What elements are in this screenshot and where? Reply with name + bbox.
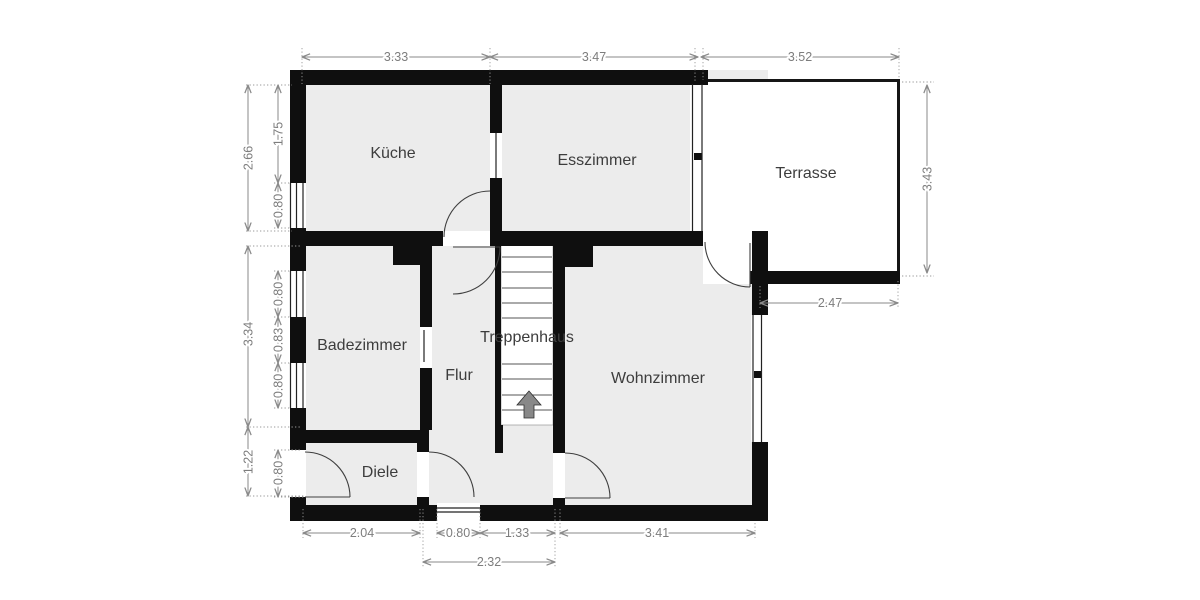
dim-label-left-outer-2: 3.34 [242,322,256,346]
floorplan-drawing: 3.33 3.47 3.52 2.66 3.34 1.22 1.75 0.80 … [0,0,1200,600]
dim-label-left-outer-3: 1.22 [242,450,256,474]
dim-label-top-3: 3.52 [788,50,812,64]
room-label-esszimmer: Esszimmer [557,152,637,169]
room-label-kueche: Küche [370,145,415,162]
dim-label-left-inner-2: 0.80 [272,194,286,218]
floorplan-canvas: 3.33 3.47 3.52 2.66 3.34 1.22 1.75 0.80 … [0,0,1200,600]
room-label-badezimmer: Badezimmer [317,337,407,354]
dim-label-terrace-bottom: 2.47 [818,296,842,310]
room-label-flur: Flur [445,367,473,384]
dim-label-left-inner-5: 0.80 [272,374,286,398]
room-label-treppenhaus: Treppenhaus [480,329,574,346]
dim-label-left-outer-1: 2.66 [242,146,256,170]
room-label-terrasse: Terrasse [775,165,836,182]
dim-label-bottom-2: 0.80 [446,526,470,540]
dim-label-bottom-3: 1.33 [505,526,529,540]
dim-label-top-1: 3.33 [384,50,408,64]
dim-label-right: 3.43 [921,167,935,191]
dim-label-bottom-total: 2.32 [477,555,501,569]
dim-label-left-inner-6: 0.80 [272,461,286,485]
dim-label-left-inner-1: 1.75 [272,122,286,146]
dim-label-bottom-4: 3.41 [645,526,669,540]
room-label-diele: Diele [362,464,399,481]
dim-label-top-2: 3.47 [582,50,606,64]
room-label-wohnzimmer: Wohnzimmer [611,370,706,387]
dim-label-left-inner-4: 0.83 [272,328,286,352]
floors [290,70,900,521]
dim-label-bottom-1: 2.04 [350,526,374,540]
dim-label-left-inner-3: 0.80 [272,282,286,306]
